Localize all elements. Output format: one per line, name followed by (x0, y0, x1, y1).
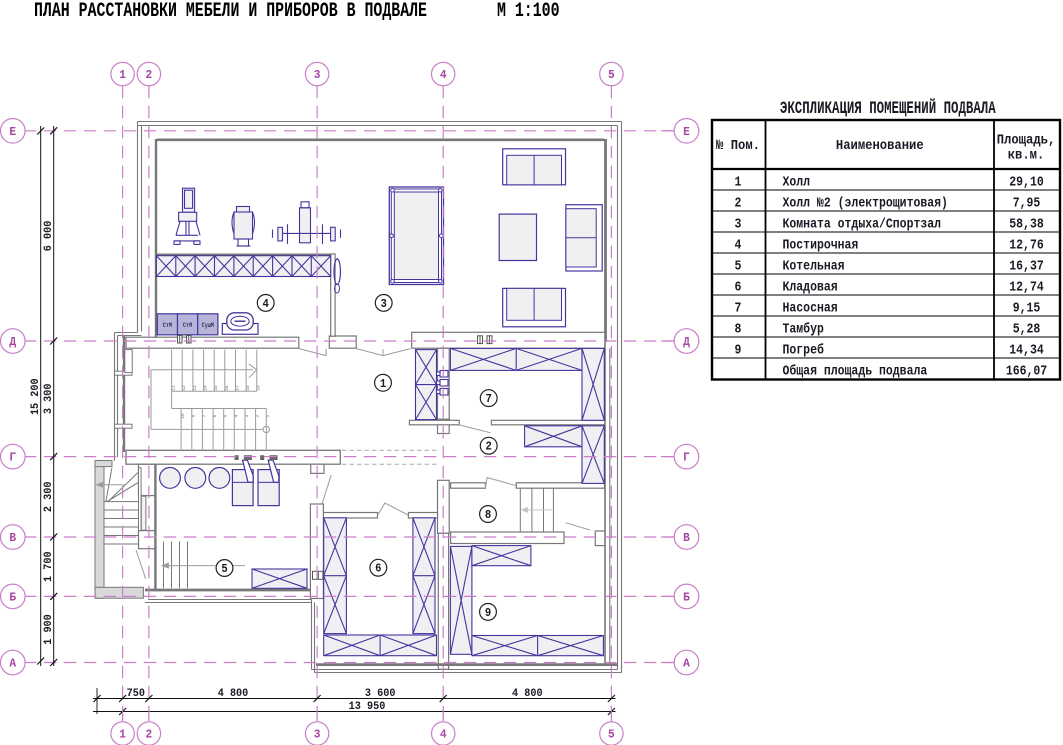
svg-text:В: В (683, 532, 690, 545)
svg-text:3 600: 3 600 (365, 688, 396, 701)
svg-text:Насосная: Насосная (783, 300, 838, 316)
svg-text:5: 5 (221, 564, 228, 577)
svg-text:1 700: 1 700 (42, 551, 55, 582)
svg-text:13 950: 13 950 (349, 701, 386, 714)
svg-text:6 000: 6 000 (42, 221, 55, 252)
svg-text:кв.м.: кв.м. (1008, 146, 1045, 162)
svg-text:6: 6 (213, 414, 218, 417)
svg-text:А: А (9, 657, 16, 670)
svg-text:ПЛАН РАССТАНОВКИ МЕБЕЛИ И ПРИБ: ПЛАН РАССТАНОВКИ МЕБЕЛИ И ПРИБОРОВ В ПОД… (34, 0, 427, 23)
svg-text:6: 6 (735, 279, 742, 295)
svg-text:СтМ: СтМ (163, 321, 173, 329)
svg-text:9: 9 (485, 608, 492, 621)
svg-text:750: 750 (127, 688, 145, 701)
svg-text:4: 4 (440, 728, 447, 741)
svg-text:Общая площадь подвала: Общая площадь подвала (783, 363, 928, 379)
svg-text:3: 3 (245, 414, 250, 417)
svg-text:3: 3 (735, 216, 742, 232)
svg-text:12: 12 (182, 385, 187, 391)
svg-text:14,34: 14,34 (1009, 342, 1044, 358)
svg-text:А: А (683, 657, 690, 670)
svg-text:Е: Е (683, 125, 690, 138)
svg-text:29,10: 29,10 (1009, 174, 1043, 190)
svg-text:2: 2 (256, 414, 261, 417)
svg-text:1: 1 (380, 378, 387, 391)
svg-text:5: 5 (608, 69, 615, 82)
svg-text:11: 11 (172, 385, 177, 391)
svg-text:Холл №2 (электрощитовая): Холл №2 (электрощитовая) (783, 195, 948, 211)
svg-text:14: 14 (203, 385, 208, 391)
svg-text:7,95: 7,95 (1013, 195, 1041, 211)
svg-text:13: 13 (193, 385, 198, 391)
svg-text:15: 15 (214, 385, 219, 391)
svg-text:4: 4 (263, 299, 270, 312)
svg-text:В: В (9, 532, 16, 545)
svg-text:8: 8 (735, 321, 742, 337)
svg-text:1: 1 (119, 69, 126, 82)
svg-text:5: 5 (224, 414, 229, 417)
svg-text:№ Пом.: № Пом. (716, 137, 760, 153)
svg-text:1 900: 1 900 (42, 614, 55, 645)
svg-text:12,74: 12,74 (1009, 279, 1044, 295)
svg-text:Г: Г (683, 451, 690, 464)
svg-text:2: 2 (486, 441, 493, 454)
svg-text:4 800: 4 800 (218, 688, 249, 701)
svg-text:Д: Д (683, 336, 690, 349)
svg-text:6: 6 (375, 563, 382, 576)
svg-text:2: 2 (146, 69, 153, 82)
svg-text:Б: Б (683, 591, 690, 604)
svg-text:19: 19 (257, 385, 262, 391)
svg-text:Холл: Холл (783, 174, 811, 190)
svg-text:9: 9 (735, 342, 742, 358)
svg-text:5: 5 (608, 728, 615, 741)
svg-text:Комната отдыха/Спортзал: Комната отдыха/Спортзал (783, 216, 942, 232)
svg-text:2 300: 2 300 (42, 481, 55, 512)
svg-text:18: 18 (246, 385, 251, 391)
svg-text:2: 2 (735, 195, 742, 211)
svg-text:М 1:100: М 1:100 (497, 0, 560, 23)
svg-text:16,37: 16,37 (1009, 258, 1043, 274)
svg-text:Кладовая: Кладовая (783, 279, 838, 295)
svg-text:3: 3 (314, 69, 321, 82)
svg-text:Наименование: Наименование (836, 137, 924, 153)
svg-text:Постирочная: Постирочная (783, 237, 859, 253)
svg-text:166,07: 166,07 (1006, 363, 1047, 379)
svg-text:1: 1 (266, 414, 271, 417)
svg-text:ЭКСПЛИКАЦИЯ ПОМЕЩЕНИЙ ПОДВАЛА: ЭКСПЛИКАЦИЯ ПОМЕЩЕНИЙ ПОДВАЛА (780, 98, 996, 119)
svg-text:4: 4 (234, 414, 239, 417)
svg-text:Котельная: Котельная (783, 258, 845, 274)
svg-text:8: 8 (485, 510, 492, 523)
svg-text:2: 2 (146, 728, 153, 741)
svg-text:17: 17 (235, 385, 240, 391)
svg-text:3: 3 (314, 728, 321, 741)
svg-text:5,28: 5,28 (1013, 321, 1041, 337)
svg-text:4 800: 4 800 (512, 688, 543, 701)
svg-text:12,76: 12,76 (1009, 237, 1043, 253)
svg-text:8: 8 (192, 414, 197, 417)
svg-text:1: 1 (119, 728, 126, 741)
svg-text:4: 4 (440, 69, 447, 82)
svg-text:10: 10 (181, 413, 186, 419)
svg-text:Погреб: Погреб (783, 342, 825, 358)
svg-text:58,38: 58,38 (1009, 216, 1043, 232)
svg-text:Площадь,: Площадь, (997, 131, 1056, 147)
svg-text:16: 16 (225, 385, 230, 391)
svg-text:1: 1 (735, 174, 742, 190)
svg-text:9,15: 9,15 (1013, 300, 1041, 316)
svg-text:4: 4 (735, 237, 742, 253)
svg-text:7: 7 (202, 414, 207, 417)
svg-text:15 200: 15 200 (29, 378, 42, 415)
svg-text:5: 5 (735, 258, 742, 274)
svg-text:Б: Б (9, 591, 16, 604)
svg-text:7: 7 (486, 394, 492, 407)
svg-text:3 300: 3 300 (42, 383, 55, 414)
svg-text:СушМ: СушМ (202, 321, 215, 329)
svg-text:7: 7 (735, 300, 742, 316)
svg-text:Тамбур: Тамбур (783, 321, 825, 337)
svg-text:3: 3 (381, 299, 388, 312)
svg-text:Г: Г (9, 451, 16, 464)
svg-text:Е: Е (9, 125, 16, 138)
svg-text:СтМ: СтМ (183, 321, 193, 329)
svg-text:Д: Д (9, 336, 16, 349)
